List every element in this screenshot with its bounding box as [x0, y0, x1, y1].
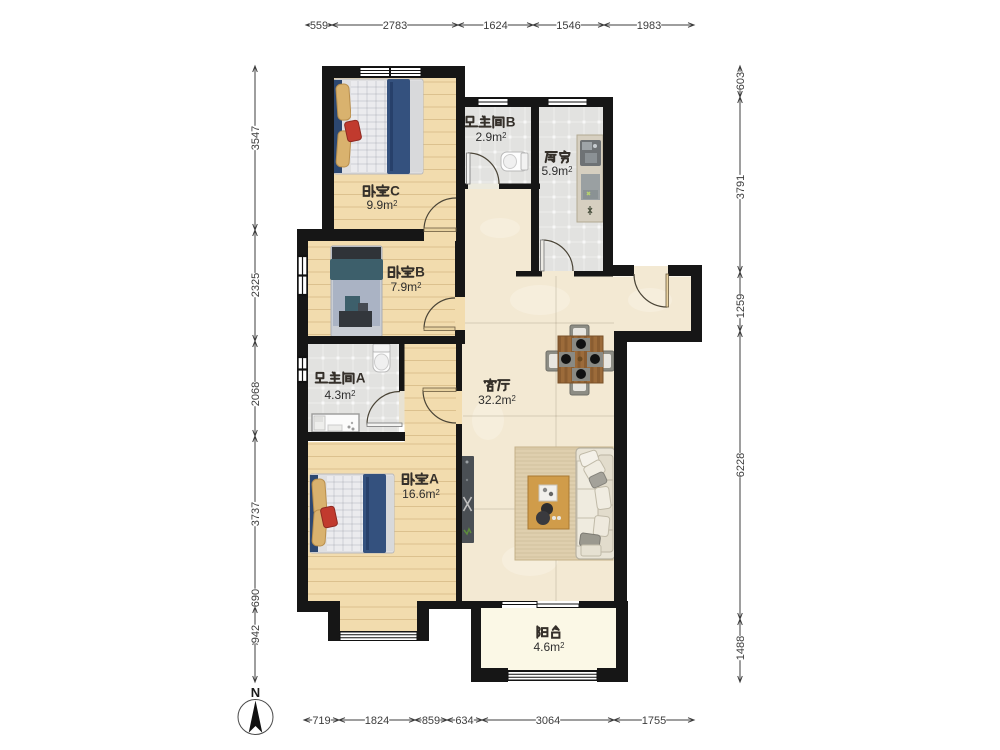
svg-text:859: 859 [422, 715, 440, 727]
svg-text:2068: 2068 [250, 382, 262, 406]
svg-text:A: A [429, 472, 439, 487]
svg-text:559: 559 [310, 20, 328, 32]
svg-text:2325: 2325 [250, 273, 262, 297]
svg-text:1488: 1488 [735, 636, 747, 660]
svg-text:6228: 6228 [735, 453, 747, 477]
svg-text:942: 942 [250, 625, 262, 643]
svg-text:2.9m2: 2.9m2 [475, 130, 506, 144]
svg-text:5.9m2: 5.9m2 [541, 164, 572, 178]
svg-text:634: 634 [455, 715, 473, 727]
svg-text:1624: 1624 [483, 20, 507, 32]
svg-text:690: 690 [250, 589, 262, 607]
svg-text:3791: 3791 [735, 175, 747, 199]
svg-text:B: B [415, 265, 425, 280]
svg-text:603: 603 [735, 72, 747, 90]
svg-text:A: A [356, 371, 366, 386]
svg-text:4.6m2: 4.6m2 [533, 640, 564, 654]
svg-text:1546: 1546 [556, 20, 580, 32]
svg-text:32.2m2: 32.2m2 [478, 393, 516, 407]
svg-text:C: C [390, 184, 400, 199]
svg-text:3737: 3737 [250, 502, 262, 526]
svg-text:N: N [251, 685, 260, 700]
svg-text:3064: 3064 [536, 715, 560, 727]
svg-text:16.6m2: 16.6m2 [402, 487, 440, 501]
svg-text:1983: 1983 [637, 20, 661, 32]
svg-text:3547: 3547 [250, 126, 262, 150]
svg-text:1259: 1259 [735, 294, 747, 318]
svg-text:9.9m2: 9.9m2 [366, 198, 397, 212]
svg-text:7.9m2: 7.9m2 [390, 280, 421, 294]
svg-text:4.3m2: 4.3m2 [324, 388, 355, 402]
svg-text:1755: 1755 [642, 715, 666, 727]
svg-text:B: B [506, 115, 516, 130]
svg-text:719: 719 [312, 715, 330, 727]
svg-text:2783: 2783 [383, 20, 407, 32]
svg-text:1824: 1824 [365, 715, 389, 727]
